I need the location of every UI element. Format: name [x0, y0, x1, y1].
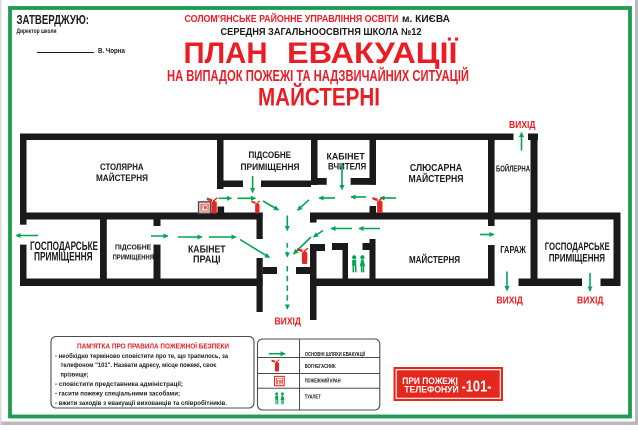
svg-text:СТОЛЯРНА: СТОЛЯРНА — [100, 162, 144, 173]
svg-text:ВЧИТЕЛЯ: ВЧИТЕЛЯ — [328, 161, 366, 172]
svg-text:ВИХІД: ВИХІД — [275, 316, 302, 328]
svg-text:СЕРЕДНЯ ЗАГАЛЬНООСВІТНЯ ШКОЛА: СЕРЕДНЯ ЗАГАЛЬНООСВІТНЯ ШКОЛА №12 — [221, 27, 422, 38]
svg-text:ЕВАКУАЦІЇ: ЕВАКУАЦІЇ — [287, 37, 459, 70]
svg-text:- сповістити представника адмі: - сповістити представника адміністрації; — [55, 380, 183, 388]
svg-text:ПРИМІЩЕННЯ: ПРИМІЩЕННЯ — [549, 253, 605, 265]
svg-text:СЛЮСАРНА: СЛЮСАРНА — [410, 163, 462, 174]
svg-text:ВИХІД: ВИХІД — [509, 119, 536, 131]
svg-text:ВИХІД: ВИХІД — [496, 295, 523, 307]
svg-text:ПІДСОБНЕ: ПІДСОБНЕ — [115, 243, 151, 252]
svg-text:ЗАТВЕРДЖУЮ:: ЗАТВЕРДЖУЮ: — [17, 13, 90, 27]
svg-text:ПРИМІЩЕННЯ: ПРИМІЩЕННЯ — [34, 252, 93, 264]
svg-text:ВИХІД: ВИХІД — [577, 295, 604, 307]
svg-text:В. Чорна: В. Чорна — [98, 48, 125, 55]
svg-text:ПРАЦІ: ПРАЦІ — [193, 254, 221, 266]
svg-text:ГОСПОДАРСЬКЕ: ГОСПОДАРСЬКЕ — [545, 241, 610, 253]
svg-text:телефоном "101". Назвати адрес: телефоном "101". Назвати адресу, місце п… — [61, 361, 217, 369]
svg-text:БОЙЛЕРНА: БОЙЛЕРНА — [496, 164, 530, 173]
svg-text:НА ВИПАДОК ПОЖЕЖІ ТА НАДЗВИЧА: НА ВИПАДОК ПОЖЕЖІ ТА НАДЗВИЧАЙНИХ СИТУАЦ… — [167, 66, 469, 85]
svg-text:ВОГНЕГАСНИК: ВОГНЕГАСНИК — [305, 364, 337, 370]
svg-text:ТЕЛЕФОНУЙ: ТЕЛЕФОНУЙ — [404, 384, 458, 395]
svg-text:МАЙСТЕРНЯ: МАЙСТЕРНЯ — [409, 172, 464, 185]
svg-text:-101-: -101- — [462, 379, 492, 396]
svg-text:ПІДСОБНЕ: ПІДСОБНЕ — [249, 150, 292, 161]
svg-text:- гасити пожежу спеціальними з: - гасити пожежу спеціальними засобами; — [55, 389, 180, 397]
svg-text:ПРИМІЩЕННЯ: ПРИМІЩЕННЯ — [113, 252, 154, 261]
svg-text:ГАРАЖ: ГАРАЖ — [500, 244, 526, 256]
svg-text:МАЙСТЕРНІ: МАЙСТЕРНІ — [258, 84, 380, 112]
svg-text:МАЙСТЕРНЯ: МАЙСТЕРНЯ — [409, 253, 460, 266]
svg-text:ПОЖЕЖНИЙ КРАН: ПОЖЕЖНИЙ КРАН — [305, 377, 341, 385]
svg-text:Директор школи: Директор школи — [17, 28, 57, 35]
svg-text:прізвище;: прізвище; — [61, 371, 89, 379]
svg-text:ПК: ПК — [277, 379, 283, 384]
svg-text:СОЛОМ'ЯНСЬКЕ РАЙОННЕ УПРАВЛІНН: СОЛОМ'ЯНСЬКЕ РАЙОННЕ УПРАВЛІННЯ ОСВІТИ — [185, 12, 399, 25]
svg-text:ТУАЛЕТ: ТУАЛЕТ — [305, 394, 321, 400]
svg-text:м. КИЄВА: м. КИЄВА — [402, 14, 450, 25]
svg-text:ПЛАН: ПЛАН — [184, 38, 268, 70]
svg-text:ОСНОВНІ ШЛЯХИ ЕВАКУАЦІЇ: ОСНОВНІ ШЛЯХИ ЕВАКУАЦІЇ — [305, 351, 366, 358]
svg-text:ПАМ'ЯТКА ПРО ПРАВИЛА ПОЖЕЖНОЇ: ПАМ'ЯТКА ПРО ПРАВИЛА ПОЖЕЖНОЇ БЕЗПЕКИ — [77, 342, 229, 350]
svg-text:ПРИМІЩЕННЯ: ПРИМІЩЕННЯ — [241, 162, 300, 173]
svg-text:МАЙСТЕРНЯ: МАЙСТЕРНЯ — [96, 172, 148, 184]
svg-text:- вжити заходів з евакуації ви: - вжити заходів з евакуації вихованців т… — [55, 399, 227, 407]
svg-text:- необхідно терміново сповісти: - необхідно терміново сповістити про те,… — [55, 352, 228, 360]
